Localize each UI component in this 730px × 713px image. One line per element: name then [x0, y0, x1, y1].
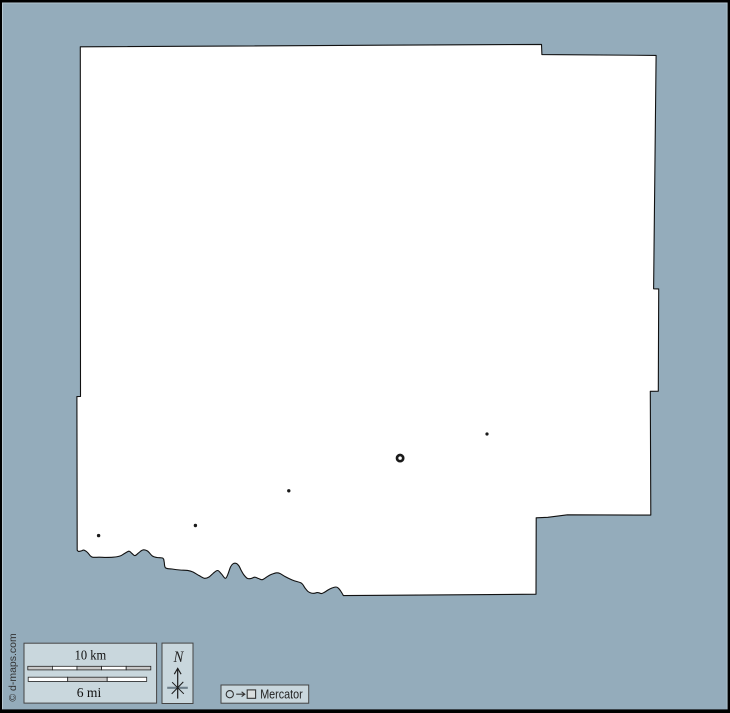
svg-text:© d-maps.com: © d-maps.com [7, 633, 19, 702]
svg-text:N: N [172, 649, 184, 666]
svg-text:6 mi: 6 mi [77, 686, 102, 701]
svg-text:10 km: 10 km [75, 649, 107, 664]
svg-text:Mercator: Mercator [260, 688, 303, 702]
